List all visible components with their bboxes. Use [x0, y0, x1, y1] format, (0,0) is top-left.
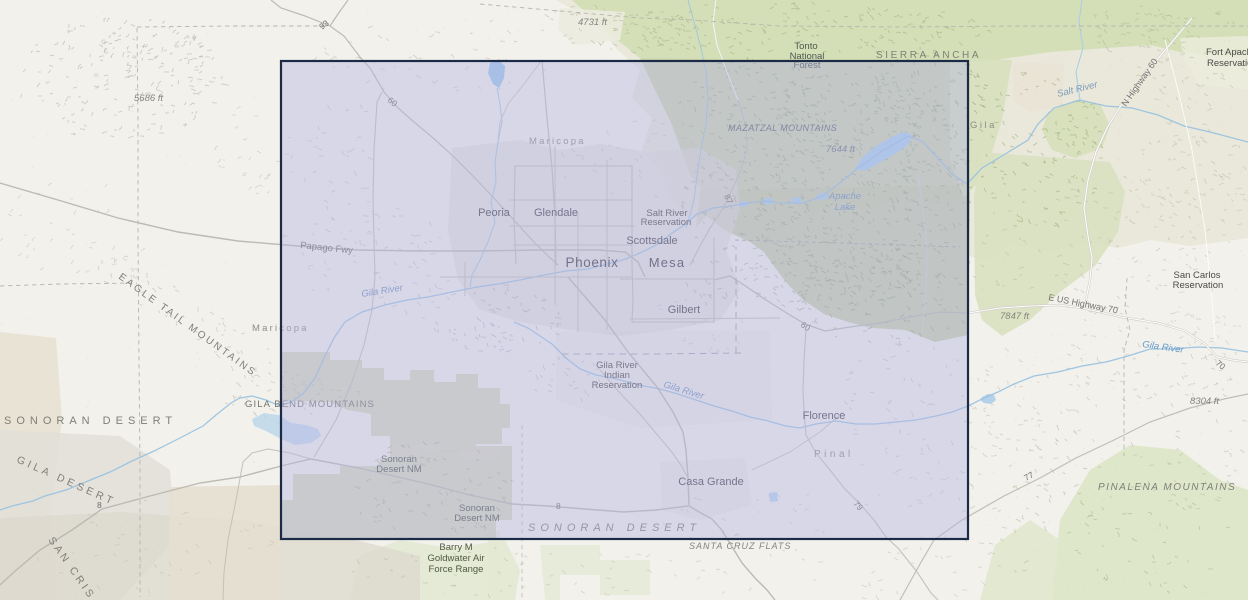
svg-text:PINALENA MOUNTAINS: PINALENA MOUNTAINS	[1098, 482, 1236, 493]
svg-text:Fort Apache: Fort Apache	[1206, 47, 1248, 58]
svg-text:Goldwater Air: Goldwater Air	[427, 553, 484, 564]
svg-text:8304 ft: 8304 ft	[1190, 396, 1219, 407]
svg-text:SANTA CRUZ FLATS: SANTA CRUZ FLATS	[689, 541, 791, 551]
svg-text:Reservation: Reservation	[1207, 58, 1248, 69]
svg-text:4731 ft: 4731 ft	[578, 17, 607, 28]
svg-text:5686 ft: 5686 ft	[134, 93, 163, 104]
svg-text:8: 8	[97, 500, 102, 510]
svg-text:Force Range: Force Range	[429, 564, 484, 575]
svg-text:Reservation: Reservation	[1173, 280, 1224, 291]
svg-text:SONORAN DESERT: SONORAN DESERT	[4, 415, 177, 427]
svg-text:7847 ft: 7847 ft	[1000, 311, 1029, 322]
svg-text:Barry M: Barry M	[439, 542, 472, 553]
svg-text:SIERRA ANCHA: SIERRA ANCHA	[876, 50, 981, 61]
svg-text:Gila: Gila	[970, 120, 997, 131]
